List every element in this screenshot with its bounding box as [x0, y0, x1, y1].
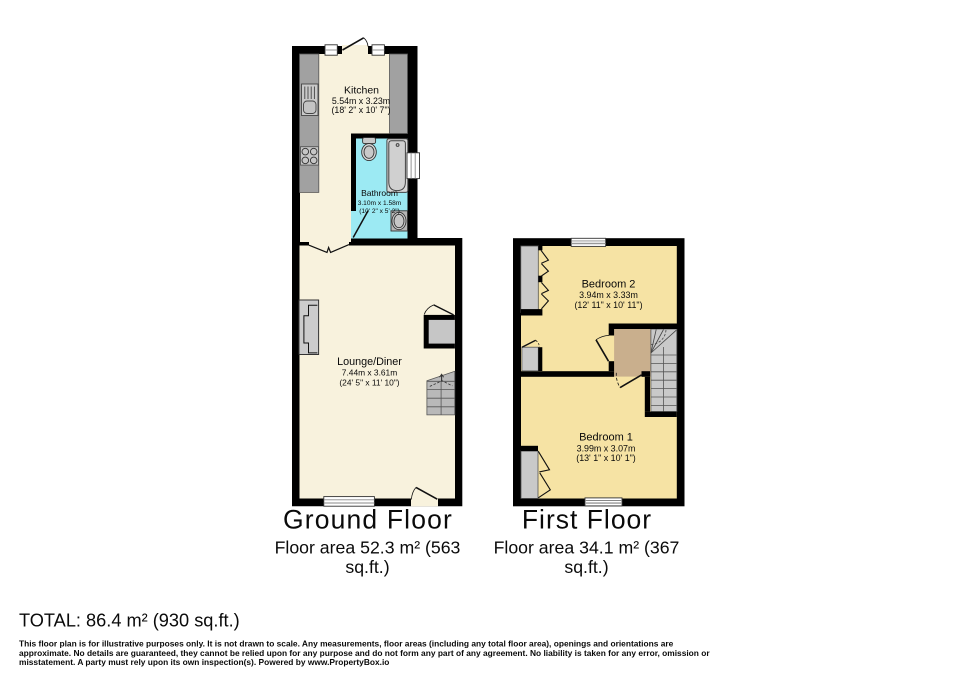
svg-text:7.44m x 3.61m: 7.44m x 3.61m [342, 367, 397, 377]
svg-text:(10' 2" x 5' 2"): (10' 2" x 5' 2") [359, 208, 400, 215]
svg-text:sq.ft.): sq.ft.) [564, 557, 608, 577]
svg-text:3.10m x 1.58m: 3.10m x 1.58m [358, 200, 402, 207]
svg-text:(12' 11" x 10' 11"): (12' 11" x 10' 11") [574, 300, 642, 310]
svg-text:3.94m x 3.33m: 3.94m x 3.33m [579, 290, 638, 300]
svg-text:TOTAL: 86.4 m² (930 sq.ft.): TOTAL: 86.4 m² (930 sq.ft.) [19, 611, 240, 631]
svg-text:Bathroom: Bathroom [361, 188, 398, 198]
svg-text:(18' 2" x 10' 7"): (18' 2" x 10' 7") [332, 105, 391, 115]
svg-text:sq.ft.): sq.ft.) [345, 557, 389, 577]
svg-text:Lounge/Diner: Lounge/Diner [337, 356, 402, 368]
svg-text:Bedroom 2: Bedroom 2 [582, 278, 636, 290]
svg-text:Kitchen: Kitchen [344, 85, 379, 97]
svg-text:Floor area 34.1 m² (367: Floor area 34.1 m² (367 [494, 537, 680, 557]
svg-text:Ground Floor: Ground Floor [283, 505, 453, 535]
svg-text:misstatement. A party must rel: misstatement. A party must rely upon its… [19, 657, 389, 667]
svg-text:3.99m x 3.07m: 3.99m x 3.07m [577, 443, 636, 453]
svg-text:(13' 1" x 10' 1"): (13' 1" x 10' 1") [576, 453, 636, 463]
svg-text:Bedroom 1: Bedroom 1 [579, 431, 633, 443]
svg-text:(24' 5" x 11' 10"): (24' 5" x 11' 10") [339, 378, 399, 388]
svg-text:Floor area 52.3 m² (563: Floor area 52.3 m² (563 [275, 537, 461, 557]
svg-text:First Floor: First Floor [522, 505, 652, 535]
